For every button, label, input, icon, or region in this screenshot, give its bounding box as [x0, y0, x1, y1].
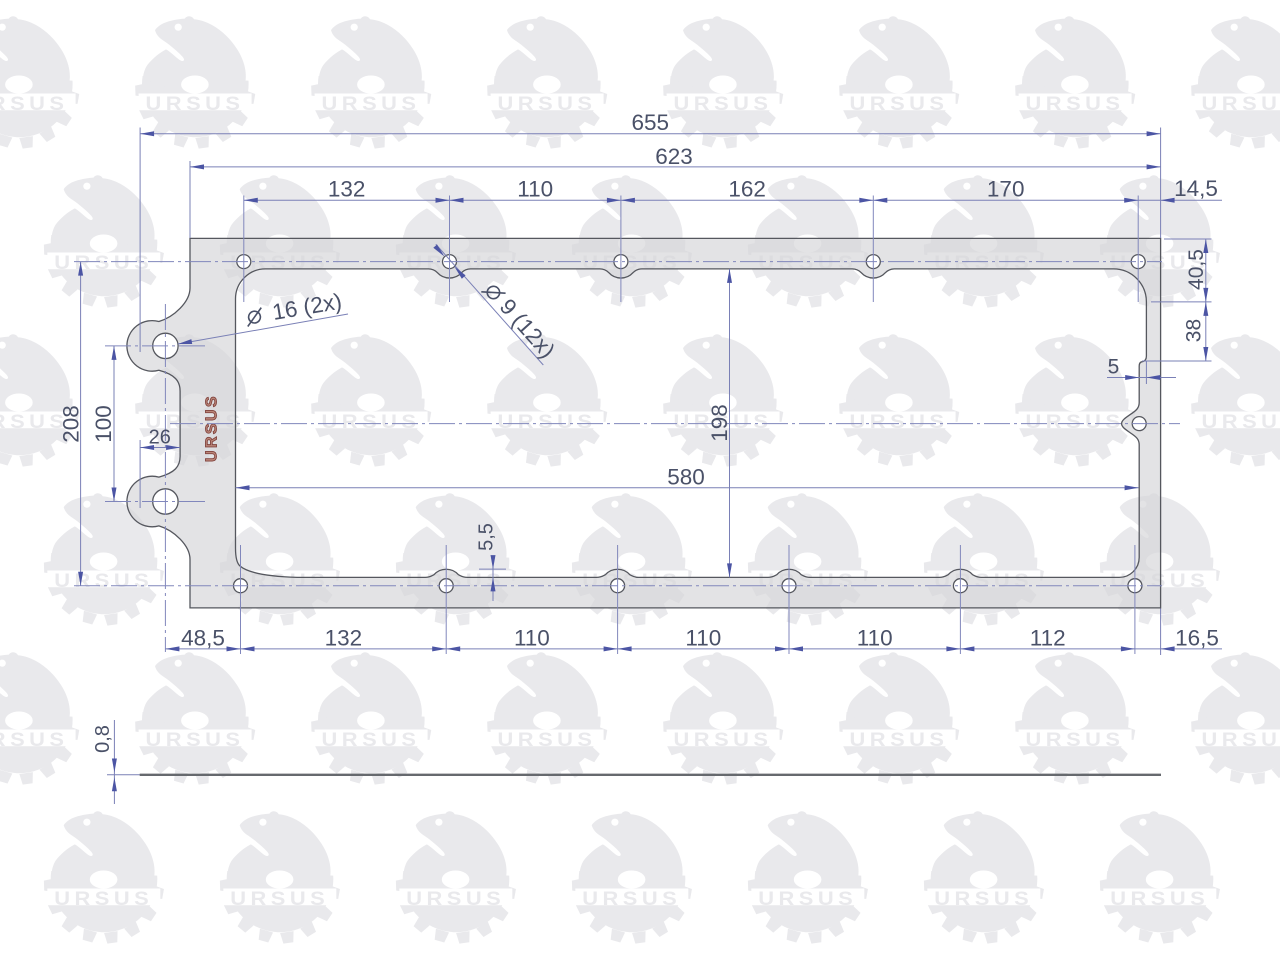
svg-text:URSUS: URSUS	[204, 394, 221, 462]
svg-text:132: 132	[328, 177, 366, 202]
svg-text:208: 208	[59, 405, 84, 443]
svg-text:0,8: 0,8	[92, 725, 114, 753]
svg-text:110: 110	[517, 177, 553, 202]
svg-text:132: 132	[325, 625, 363, 650]
svg-text:580: 580	[667, 465, 705, 490]
svg-text:655: 655	[632, 110, 670, 135]
svg-text:110: 110	[857, 625, 893, 650]
svg-text:623: 623	[655, 144, 693, 169]
svg-text:110: 110	[514, 625, 550, 650]
svg-text:170: 170	[987, 177, 1025, 202]
svg-text:48,5: 48,5	[181, 625, 225, 650]
svg-text:162: 162	[728, 177, 766, 202]
svg-text:100: 100	[91, 405, 116, 443]
svg-text:5: 5	[1108, 356, 1120, 379]
svg-text:26: 26	[149, 427, 171, 449]
svg-text:40,5: 40,5	[1185, 249, 1208, 290]
svg-text:198: 198	[707, 404, 732, 442]
svg-text:112: 112	[1030, 625, 1066, 650]
svg-text:38: 38	[1183, 319, 1206, 342]
svg-text:16,5: 16,5	[1175, 625, 1219, 650]
svg-text:14,5: 14,5	[1174, 176, 1218, 201]
svg-text:5,5: 5,5	[476, 523, 498, 551]
svg-text:110: 110	[685, 625, 721, 650]
